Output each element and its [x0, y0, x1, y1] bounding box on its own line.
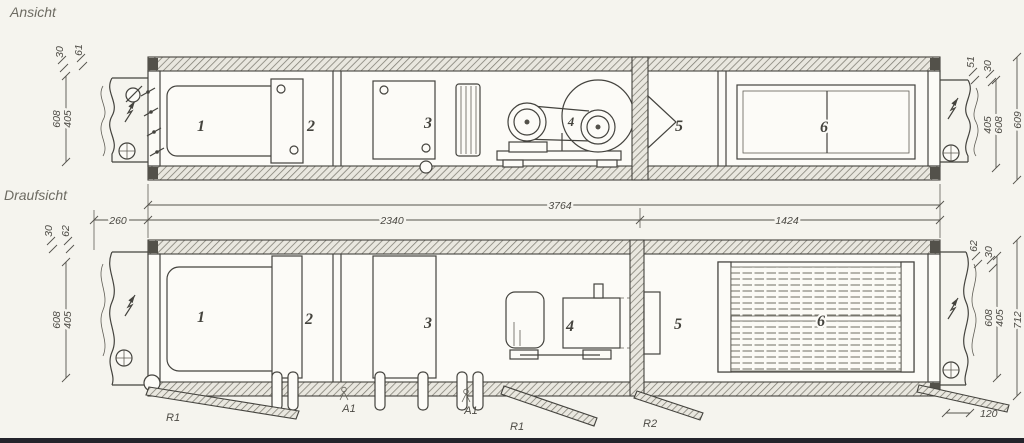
- ahu-drawing: Ansicht: [0, 0, 1024, 443]
- top-section-3-label: 3: [423, 315, 432, 332]
- duct-flange-icon: [943, 145, 959, 161]
- front-dims-left: 30 61 608 405: [51, 44, 87, 166]
- left-segment-dim: 2340: [379, 215, 404, 227]
- label-a1-left: A1: [341, 403, 355, 415]
- dim-text: 712: [1012, 311, 1024, 329]
- technical-drawing-sheet: Ansicht: [0, 0, 1024, 443]
- dimension-ticks: [47, 237, 74, 253]
- top-divider-wall: [630, 240, 644, 396]
- top-view-title: Draufsicht: [4, 187, 68, 203]
- dim-text: 30: [54, 46, 66, 58]
- front-inlet-duct-break: [101, 78, 148, 162]
- top-view: 1 2 3 4 5: [101, 240, 976, 396]
- dim-text: 62: [60, 225, 72, 237]
- dim-text: 62: [968, 240, 980, 252]
- duct-flange-icon: [116, 350, 132, 366]
- dim-text: 30: [982, 60, 994, 72]
- top-section-1-label: 1: [197, 309, 205, 326]
- top-dims-left: 30 62 608 405: [43, 225, 74, 382]
- top-section-4-label: 4: [565, 318, 574, 335]
- inlet-stub-dim: 260: [108, 215, 127, 227]
- front-section-2-label: 2: [306, 118, 315, 135]
- airflow-arrow-icon: [125, 101, 135, 122]
- front-divider-wall: [632, 57, 648, 180]
- overall-length-dim: 3764: [548, 200, 572, 212]
- motor-bracket: [509, 142, 547, 152]
- louvre-bank-upper: [731, 267, 901, 316]
- front-right-end-frame: [928, 71, 940, 166]
- front-section-3-label: 3: [423, 115, 432, 132]
- top-casing-bottom-panel: [148, 382, 940, 396]
- top-right-end-frame: [928, 254, 940, 382]
- front-section-2: [271, 79, 303, 163]
- dim-text: 405: [994, 309, 1006, 327]
- front-casing-bottom-panel: [148, 166, 940, 180]
- airflow-arrow-icon: [948, 98, 958, 119]
- dim-text: 61: [73, 44, 85, 56]
- top-section-5-label: 5: [674, 316, 682, 333]
- label-r1-mid: R1: [510, 421, 524, 433]
- top-left-end-frame: [148, 254, 160, 382]
- right-segment-dim: 1424: [775, 215, 799, 227]
- duct-flange-icon: [943, 362, 959, 378]
- label-a1-right: A1: [463, 405, 477, 417]
- label-r2: R2: [643, 418, 657, 430]
- airflow-arrow-icon: [125, 295, 135, 316]
- top-section-2-label: 2: [304, 311, 313, 328]
- airflow-arrow-icon: [948, 298, 958, 319]
- front-view: 1 2 3: [101, 57, 978, 180]
- label-r1-left: R1: [166, 412, 180, 424]
- dim-text: 608: [993, 116, 1005, 134]
- front-section-6-label: 6: [820, 119, 828, 136]
- scan-edge: [0, 438, 1024, 443]
- dim-text: 30: [983, 246, 995, 258]
- front-dims-right: 51 30 405 608 609: [965, 53, 1024, 184]
- front-section-1-label: 1: [197, 118, 205, 135]
- top-casing-top-panel: [148, 240, 940, 254]
- front-casing-top-panel: [148, 57, 940, 71]
- top-outlet-duct-break: [940, 252, 976, 385]
- dim-text: 405: [62, 110, 74, 128]
- top-section-6-label: 6: [817, 313, 825, 330]
- front-filter-element: [456, 84, 480, 156]
- dim-text: 30: [43, 225, 55, 237]
- fan-shaft-stub: [594, 284, 603, 298]
- top-discharge-opening: [644, 292, 660, 354]
- top-section-2: [272, 256, 302, 378]
- dim-text: 609: [1012, 111, 1024, 129]
- front-outlet-duct-break: [940, 80, 978, 162]
- front-view-title: Ansicht: [9, 4, 57, 20]
- louvre-bank-lower: [731, 321, 901, 371]
- motor-top-view: [506, 292, 544, 348]
- drain-ramp-right: [917, 385, 1009, 412]
- front-section-4-label: 4: [567, 114, 575, 129]
- duct-flange-icon: [119, 143, 135, 159]
- dim-text: 405: [62, 311, 74, 329]
- dim-text: 51: [965, 56, 977, 68]
- front-section-5-label: 5: [675, 118, 683, 135]
